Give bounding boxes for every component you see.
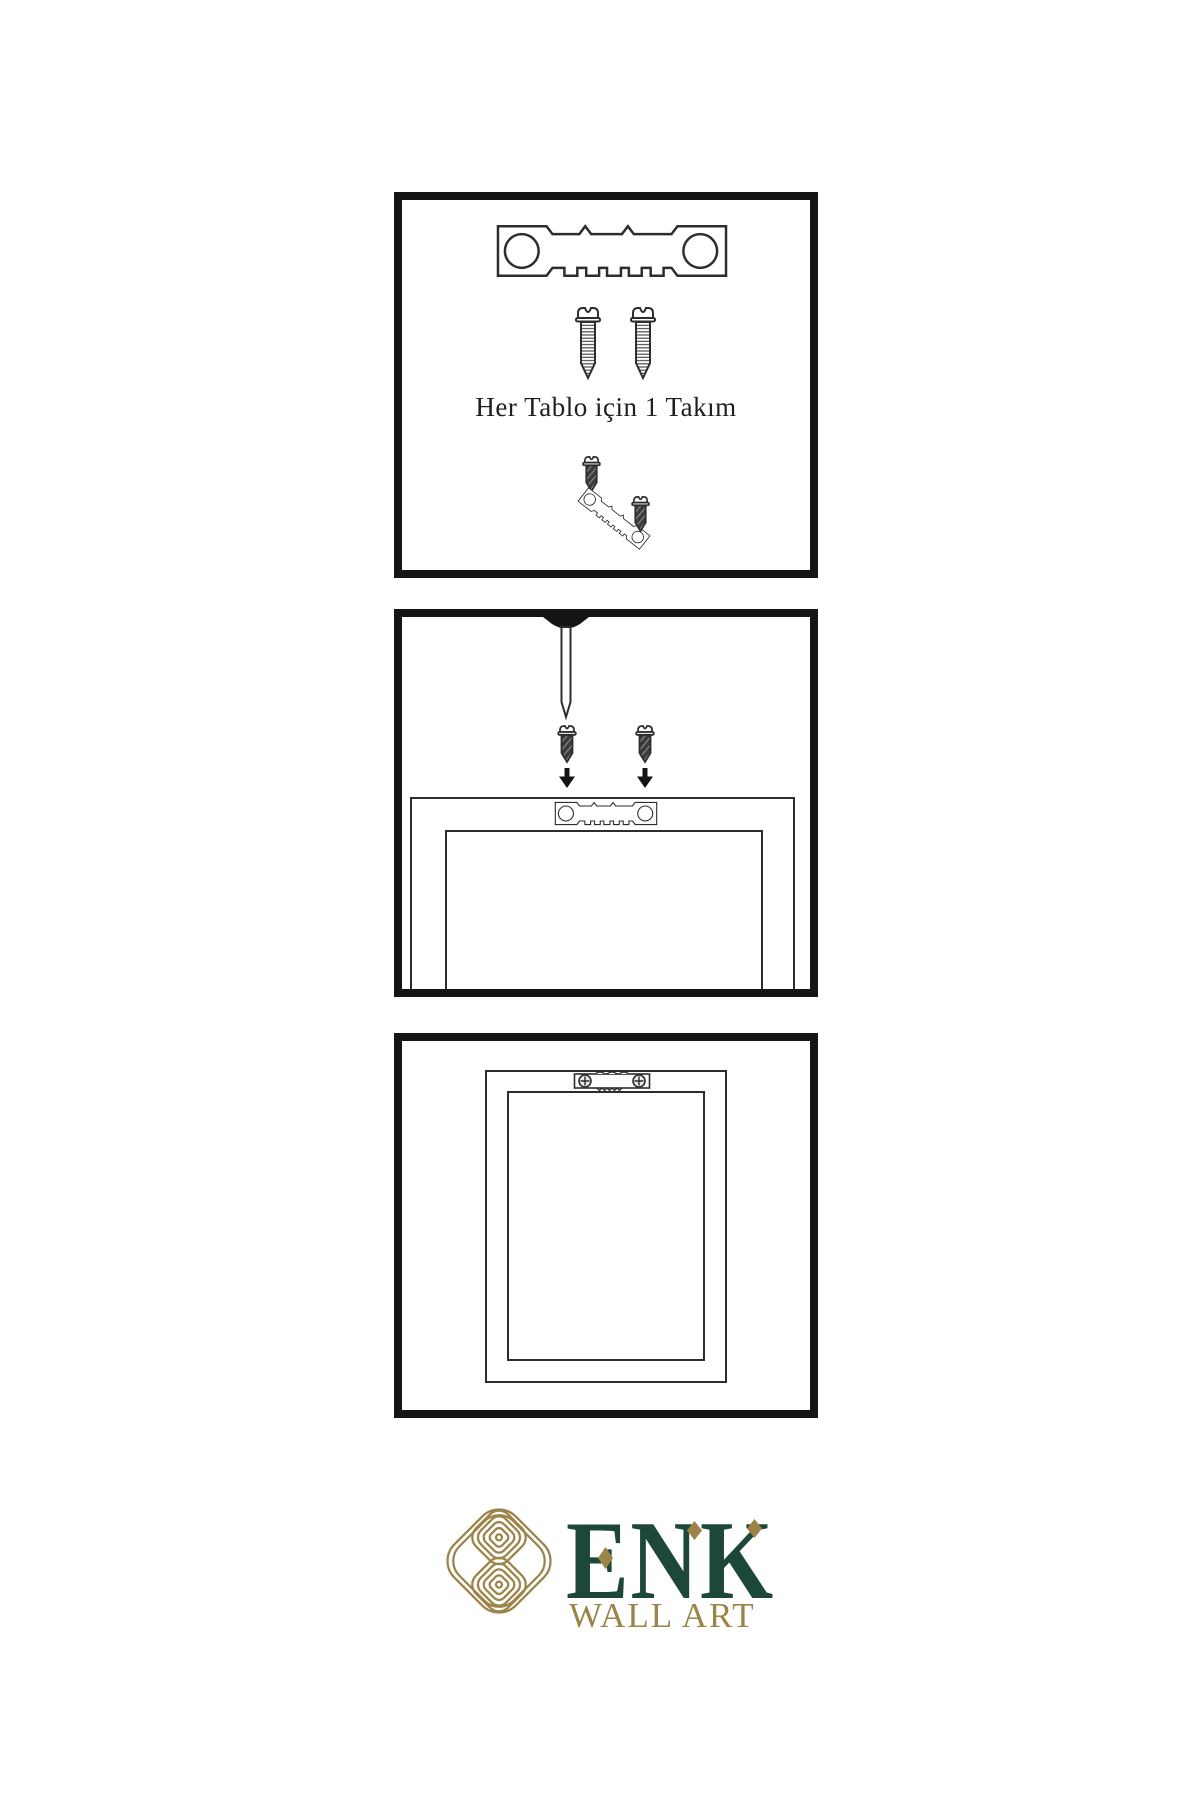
screw-icon xyxy=(556,724,578,764)
screw-icon xyxy=(630,495,651,533)
step-panel-wall-mount xyxy=(394,609,818,997)
picture-frame-back-inner xyxy=(445,830,763,997)
arrow-down-icon xyxy=(559,768,575,788)
arrow-down-icon xyxy=(637,768,653,788)
screw-icon xyxy=(628,305,658,381)
sawtooth-hanger-icon xyxy=(495,223,729,279)
page-canvas: { "colors": { "ink": "#2d2d2d", "panel_b… xyxy=(0,0,1200,1800)
screw-icon xyxy=(634,724,656,764)
step-panel-kit: Her Tablo için 1 Takım xyxy=(394,192,818,578)
screw-icon xyxy=(581,455,602,493)
hanger-with-screws-icon xyxy=(573,1071,651,1091)
nail-icon xyxy=(543,617,589,721)
picture-frame-back-inner xyxy=(507,1091,705,1361)
sawtooth-hanger-icon xyxy=(554,801,658,826)
kit-caption: Her Tablo için 1 Takım xyxy=(402,392,810,423)
screw-icon xyxy=(573,305,603,381)
knot-logo-icon xyxy=(435,1495,563,1627)
brand-tagline: WALL ART xyxy=(569,1596,756,1636)
step-panel-hang xyxy=(394,1033,818,1418)
